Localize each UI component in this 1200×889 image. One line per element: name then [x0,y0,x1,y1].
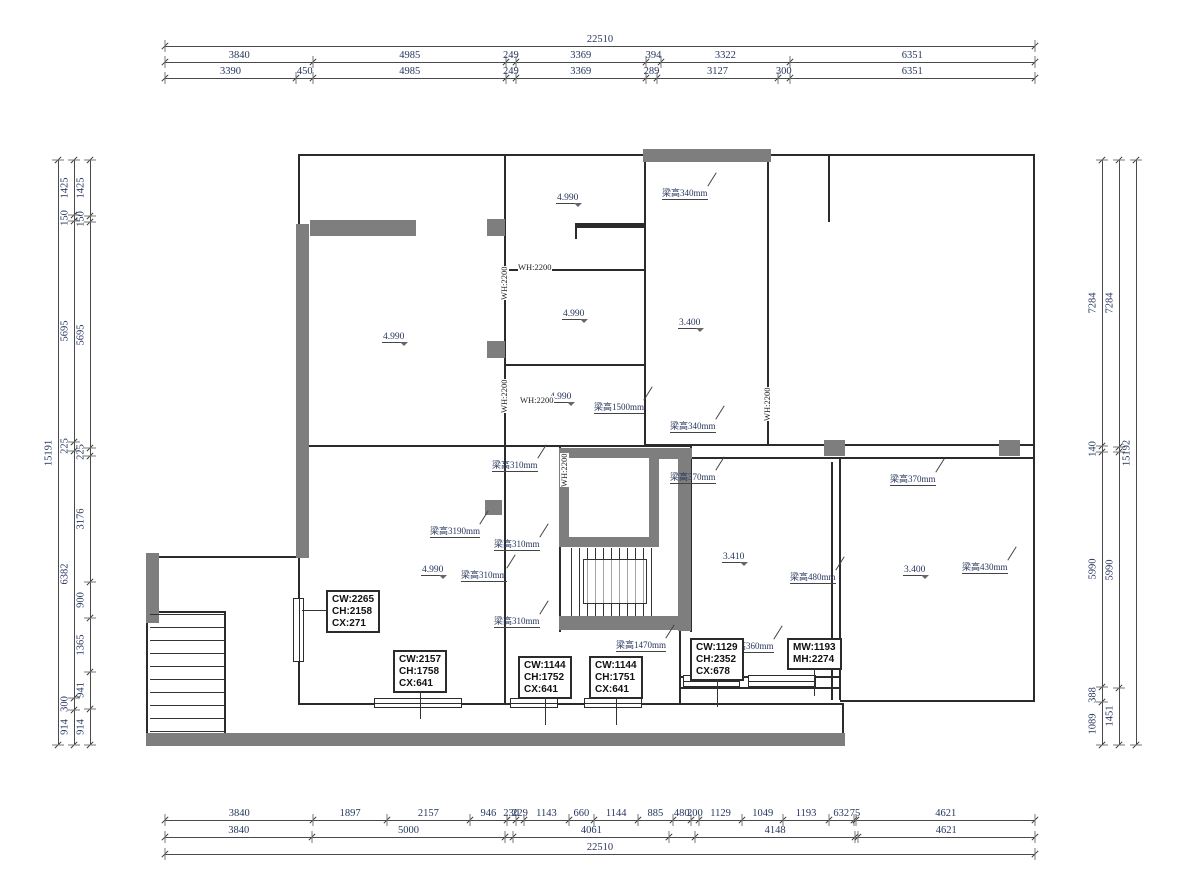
bottom-row-2-value: 4621 [936,825,957,836]
left-overall-ext [52,160,64,161]
right-row-1-value: 1089 [1088,713,1099,734]
bottom-row-2-ext [1035,831,1036,843]
top-row-2-ext [165,56,166,68]
window-spec-box: CW:1144CH:1751CX:641 [589,656,643,699]
left-row-2-value: 6382 [60,564,71,585]
beam-height-label: 梁高430mm [962,560,1008,574]
left-row-2-value: 914 [60,719,71,735]
bottom-row-1-ext [386,814,387,826]
left-row-3-value: 5695 [76,324,87,345]
bottom-row-1-ext [742,814,743,826]
beam-height-label: 梁高1500mm [594,400,644,414]
level-marker: 3.400 [903,565,928,576]
right-row-1-value: 388 [1088,687,1099,703]
left-row-3-value: 3176 [76,509,87,530]
bottom-overall-line [165,854,1035,855]
left-overall-value: 15191 [44,439,55,465]
level-marker: 4.990 [382,332,407,343]
beam-height-label: 梁高310mm [494,537,540,551]
top-row-3-value: 3127 [707,66,728,77]
beam-height-label: 梁高1470mm [616,638,666,652]
right-row-2-ext [1113,687,1125,688]
window [293,598,304,662]
bottom-row-2-ext [669,831,670,843]
beam-height-label: 梁高310mm [492,458,538,472]
thick-wall [146,553,159,623]
bottom-row-2-value: 4148 [765,825,786,836]
right-row-2-ext [1113,160,1125,161]
right-row-2-value: 1451 [1105,706,1116,727]
top-row-3-ext [1035,72,1036,84]
right-row-1-value: 7284 [1088,293,1099,314]
top-row-3-ext [165,72,166,84]
bottom-row-1-value: 660 [573,808,589,819]
level-marker: 4.990 [562,309,587,320]
right-row-1-ext [1096,702,1108,703]
top-row-2-line [165,62,1035,63]
wall-segment [148,611,225,613]
beam-height-label: 梁高340mm [662,186,708,200]
wall-segment [148,556,300,558]
bottom-overall-value: 22510 [587,842,613,853]
top-row-3-ext [657,72,658,84]
window-spec-box: CW:1144CH:1752CX:641 [518,656,572,699]
top-row-3-value: 3390 [220,66,241,77]
spec-line: CH:1758 [399,666,441,678]
bottom-row-1-value: 1144 [606,808,627,819]
right-row-2-value: 7284 [1105,293,1116,314]
wall-segment [1033,154,1035,702]
spec-line: MH:2274 [793,654,836,666]
stair-railing [583,559,647,604]
thick-wall [146,733,845,746]
right-overall-value: 15192 [1122,439,1133,465]
bottom-row-1-ext [568,814,569,826]
bottom-row-1-value: 632 [833,808,849,819]
wall-segment [680,687,840,689]
right-row-1-ext [1096,745,1108,746]
bottom-row-1-ext [856,814,857,826]
top-row-3-value: 6351 [902,66,923,77]
thick-wall [659,448,692,459]
top-row-3-value: 450 [297,66,313,77]
column [999,440,1020,456]
spec-line: CH:2158 [332,606,374,618]
window-spec-box: CW:1129CH:2352CX:678 [690,638,744,681]
window [748,675,816,687]
bottom-row-1-value: 1049 [752,808,773,819]
left-row-2-ext [68,709,80,710]
level-marker: 4.990 [421,565,446,576]
spec-line: CX:678 [696,666,738,678]
spec-line: CH:1752 [524,672,566,684]
beam-height-label: 梁高480mm [790,570,836,584]
right-row-1-ext [1096,451,1108,452]
column [487,341,505,358]
wall-segment [680,457,1035,459]
left-row-2-value: 5695 [60,321,71,342]
top-row-2-value: 6351 [902,50,923,61]
bottom-row-1-ext [524,814,525,826]
spec-line: CX:641 [399,678,441,690]
spec-line: CW:1144 [595,660,637,672]
partial-wall [575,223,645,228]
beam-height-label: 梁高3190mm [430,524,480,538]
right-row-2-value: 5990 [1105,560,1116,581]
left-row-3-value: 914 [76,719,87,735]
beam-height-label: 梁高310mm [461,568,507,582]
bottom-row-1-value: 3840 [229,808,250,819]
right-row-1-value: 5990 [1088,559,1099,580]
top-row-2-ext [661,56,662,68]
top-row-3-value: 4985 [399,66,420,77]
level-marker: 4.990 [556,193,581,204]
bottom-row-1-value: 1143 [536,808,557,819]
left-row-3-ext [84,456,96,457]
left-row-3-value: 941 [76,682,87,698]
right-row-1-ext [1096,160,1108,161]
wall-segment [298,154,300,228]
spec-line: CW:1144 [524,660,566,672]
window [510,698,558,708]
left-overall-ext [52,745,64,746]
bottom-row-2-value: 5000 [398,825,419,836]
bottom-row-1-value: 1129 [710,808,731,819]
bottom-row-1-ext [470,814,471,826]
top-row-2-value: 3369 [570,50,591,61]
bottom-overall-ext [1035,848,1036,860]
wall-segment [644,154,646,446]
level-marker: 3.400 [678,318,703,329]
bottom-row-1-value: 946 [481,808,497,819]
bottom-row-1-ext [638,814,639,826]
bottom-row-2-ext [513,831,514,843]
spec-line: MW:1193 [793,642,836,654]
right-row-2-ext [1113,745,1125,746]
left-row-3-value: 1365 [76,634,87,655]
right-overall-ext [1130,160,1142,161]
left-row-3-ext [84,708,96,709]
bottom-row-1-value: 4621 [935,808,956,819]
bottom-row-1-value: 885 [648,808,664,819]
bottom-row-2-line [165,837,1035,838]
bottom-row-1-value: 2157 [418,808,439,819]
bottom-row-1-ext [829,814,830,826]
beam-height-label: 梁高370mm [670,470,716,484]
top-overall-ext [165,40,166,52]
thick-wall [310,220,416,236]
spec-line: CH:1751 [595,672,637,684]
top-row-2-ext [313,56,314,68]
spec-line: CH:2352 [696,654,738,666]
floor-plan-canvas: 2251038404985249336939433226351339045049… [0,0,1200,889]
thick-wall [643,149,771,162]
bottom-row-1-ext [698,814,699,826]
bottom-row-2-ext [695,831,696,843]
thick-wall [296,224,309,558]
right-overall-ext [1130,745,1142,746]
top-row-3-ext [313,72,314,84]
spec-line: CW:2157 [399,654,441,666]
top-row-3-value: 3369 [570,66,591,77]
window [374,698,462,708]
left-row-2-value: 1425 [60,177,71,198]
thick-wall [678,459,691,631]
left-row-3-value: 1425 [76,178,87,199]
bottom-row-1-ext [1035,814,1036,826]
bottom-row-1-ext [165,814,166,826]
left-row-3-ext [84,160,96,161]
bottom-row-1-line [165,820,1035,821]
left-row-2-ext [68,160,80,161]
bottom-row-2-ext [857,831,858,843]
left-row-3-ext [84,222,96,223]
wall-segment [224,611,226,745]
top-row-2-value: 3840 [229,50,250,61]
top-row-2-ext [1035,56,1036,68]
spec-line: CW:1129 [696,642,738,654]
bottom-row-1-value: 1897 [340,808,361,819]
bottom-row-2-ext [312,831,313,843]
window-spec-box: CW:2157CH:1758CX:641 [393,650,447,693]
left-row-3-value: 150 [76,211,87,227]
top-overall-value: 22510 [587,34,613,45]
top-row-3-ext [515,72,516,84]
window-spec-box: CW:2265CH:2158CX:271 [326,590,380,633]
spec-line: CX:641 [595,684,637,696]
left-row-2-ext [68,745,80,746]
bottom-row-2-value: 4061 [581,825,602,836]
door-height-label: WH:2200 [518,263,552,272]
column [487,219,505,236]
left-row-3-value: 225 [76,444,87,460]
door-height-label: WH:2200 [763,387,772,421]
wall-segment [298,445,561,447]
wall-segment [840,700,1035,702]
top-row-2-value: 3322 [715,50,736,61]
top-overall-ext [1035,40,1036,52]
top-row-2-value: 394 [646,50,662,61]
left-row-3-ext [84,745,96,746]
column [824,440,845,456]
spec-line: CX:641 [524,684,566,696]
left-row-3-ext [84,582,96,583]
wall-segment [560,445,691,447]
wall-segment [828,154,830,222]
level-marker: 3.410 [722,552,747,563]
left-row-3-ext [84,671,96,672]
left-row-2-value: 225 [60,438,71,454]
stairs-bottom-left [150,614,224,742]
beam-height-label: 梁高370mm [890,472,936,486]
window-spec-box: MW:1193MH:2274 [787,638,842,670]
bottom-row-1-ext [313,814,314,826]
top-overall-line [165,46,1035,47]
bottom-row-2-ext [165,831,166,843]
beam-height-label: 梁高310mm [494,614,540,628]
spec-line: CW:2265 [332,594,374,606]
spec-line: CX:271 [332,618,374,630]
left-row-3-value: 900 [76,592,87,608]
right-row-1-value: 140 [1088,441,1099,457]
top-row-2-value: 4985 [399,50,420,61]
elevator-shaft [559,448,659,547]
window [584,698,642,708]
left-row-3-ext [84,617,96,618]
door-height-label: WH:2200 [500,266,509,300]
door-height-label: WH:2200 [520,396,554,405]
right-overall-line [1136,160,1137,745]
top-row-3-ext [789,72,790,84]
bottom-row-2-ext [504,831,505,843]
bottom-row-2-value: 3840 [228,825,249,836]
left-row-2-value: 150 [60,210,71,226]
bottom-row-1-value: 1193 [796,808,817,819]
wall-segment [505,364,645,366]
beam-height-label: 梁高340mm [670,419,716,433]
door-height-label: WH:2200 [560,453,569,487]
bottom-row-2-ext [854,831,855,843]
bottom-row-1-ext [672,814,673,826]
bottom-overall-ext [165,848,166,860]
door-height-label: WH:2200 [500,379,509,413]
